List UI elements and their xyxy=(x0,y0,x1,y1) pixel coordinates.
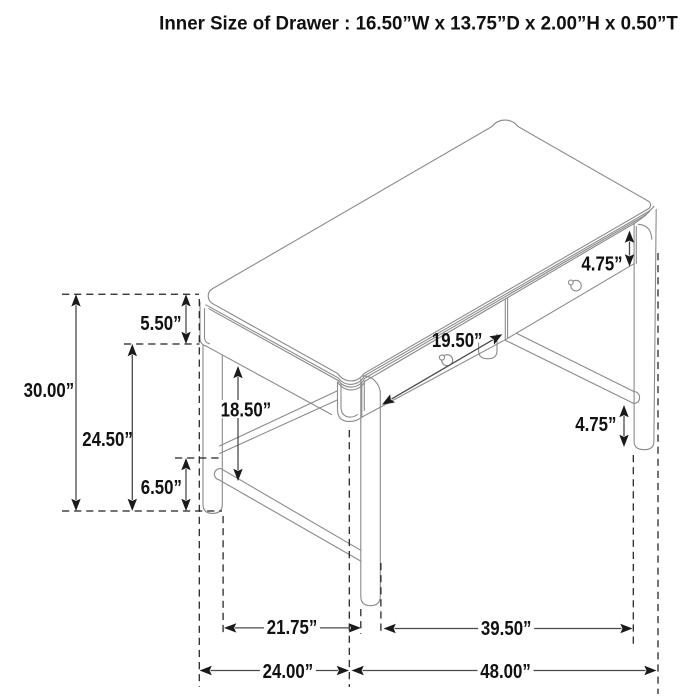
svg-text:Inner Size of Drawer : 16.50”W: Inner Size of Drawer : 16.50”W x 13.75”D… xyxy=(159,12,678,33)
svg-text:4.75”: 4.75” xyxy=(581,252,622,275)
svg-text:4.75”: 4.75” xyxy=(575,413,616,436)
svg-text:24.50”: 24.50” xyxy=(82,428,133,451)
svg-text:21.75”: 21.75” xyxy=(267,616,318,639)
svg-text:19.50”: 19.50” xyxy=(432,329,483,352)
svg-text:48.00”: 48.00” xyxy=(480,659,531,682)
svg-text:30.00”: 30.00” xyxy=(24,378,75,401)
svg-text:5.50”: 5.50” xyxy=(140,312,181,335)
svg-text:24.00”: 24.00” xyxy=(263,659,314,682)
svg-text:18.50”: 18.50” xyxy=(221,398,272,421)
svg-text:39.50”: 39.50” xyxy=(481,616,532,639)
svg-text:6.50”: 6.50” xyxy=(141,476,182,499)
